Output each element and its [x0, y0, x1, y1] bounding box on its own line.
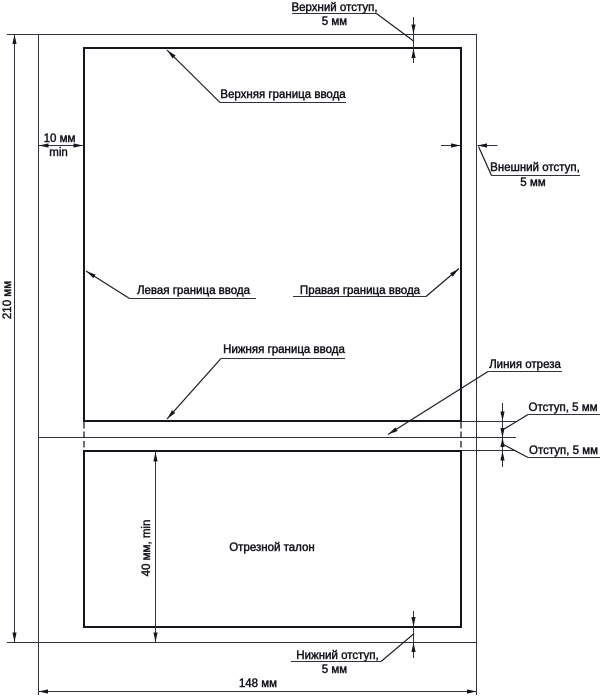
svg-text:min: min: [49, 147, 68, 159]
svg-text:Внешний отступ,: Внешний отступ,: [490, 162, 580, 174]
svg-text:Нижняя граница ввода: Нижняя граница ввода: [223, 344, 345, 356]
svg-text:5 мм: 5 мм: [520, 177, 545, 189]
svg-text:Нижний отступ,: Нижний отступ,: [296, 650, 378, 662]
svg-text:Отступ, 5 мм: Отступ, 5 мм: [529, 402, 598, 414]
svg-text:5 мм: 5 мм: [322, 664, 347, 676]
svg-text:Отступ, 5 мм: Отступ, 5 мм: [529, 445, 598, 457]
svg-text:Отрезной талон: Отрезной талон: [229, 542, 315, 554]
svg-text:5 мм: 5 мм: [322, 16, 347, 28]
svg-text:Верхняя граница ввода: Верхняя граница ввода: [220, 89, 346, 101]
svg-text:Линия отреза: Линия отреза: [489, 359, 561, 371]
svg-text:Верхний отступ,: Верхний отступ,: [291, 2, 377, 14]
svg-text:40 мм, min: 40 мм, min: [141, 520, 153, 577]
svg-text:Левая граница ввода: Левая граница ввода: [137, 285, 251, 297]
svg-text:Правая граница ввода: Правая граница ввода: [300, 285, 421, 297]
svg-text:210 мм: 210 мм: [2, 281, 14, 319]
svg-text:10 мм: 10 мм: [44, 133, 76, 145]
svg-text:148 мм: 148 мм: [239, 678, 277, 690]
